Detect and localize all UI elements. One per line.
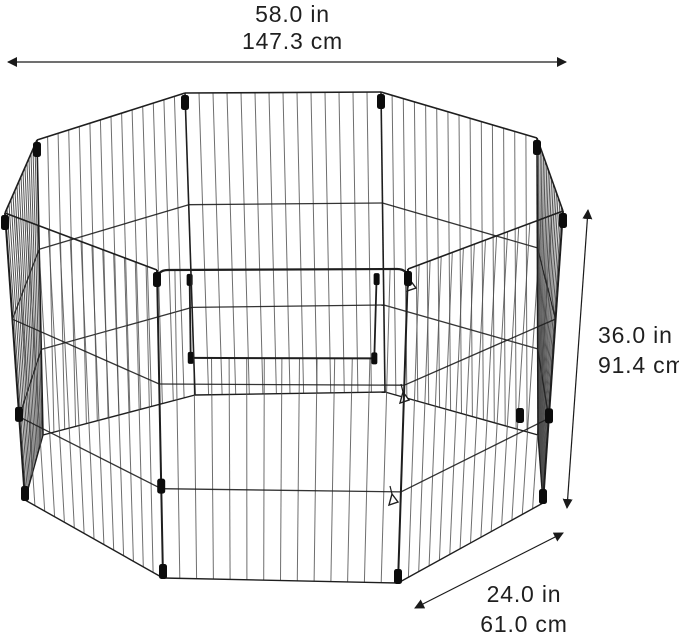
playpen-wireframe: [0, 0, 679, 636]
corner-posts: [5, 92, 563, 583]
width-dimension-label: 58.0 in 147.3 cm: [170, 1, 415, 55]
height-inches: 36.0 in: [598, 320, 679, 350]
depth-dimension-label: 24.0 in 61.0 cm: [444, 579, 604, 636]
height-dimension-label: 36.0 in 91.4 cm: [598, 320, 679, 380]
height-dimension-arrow: [567, 210, 588, 508]
playpen-illustration: [0, 0, 679, 636]
width-centimeters: 147.3 cm: [170, 28, 415, 55]
height-centimeters: 91.4 cm: [598, 350, 679, 380]
product-dimension-diagram: 58.0 in 147.3 cm 36.0 in 91.4 cm 24.0 in…: [0, 0, 679, 636]
wire-panel: [185, 92, 385, 395]
width-inches: 58.0 in: [170, 1, 415, 28]
depth-inches: 24.0 in: [444, 579, 604, 609]
wire-panel: [537, 138, 563, 503]
depth-centimeters: 61.0 cm: [444, 609, 604, 636]
door-panel: [157, 269, 416, 583]
